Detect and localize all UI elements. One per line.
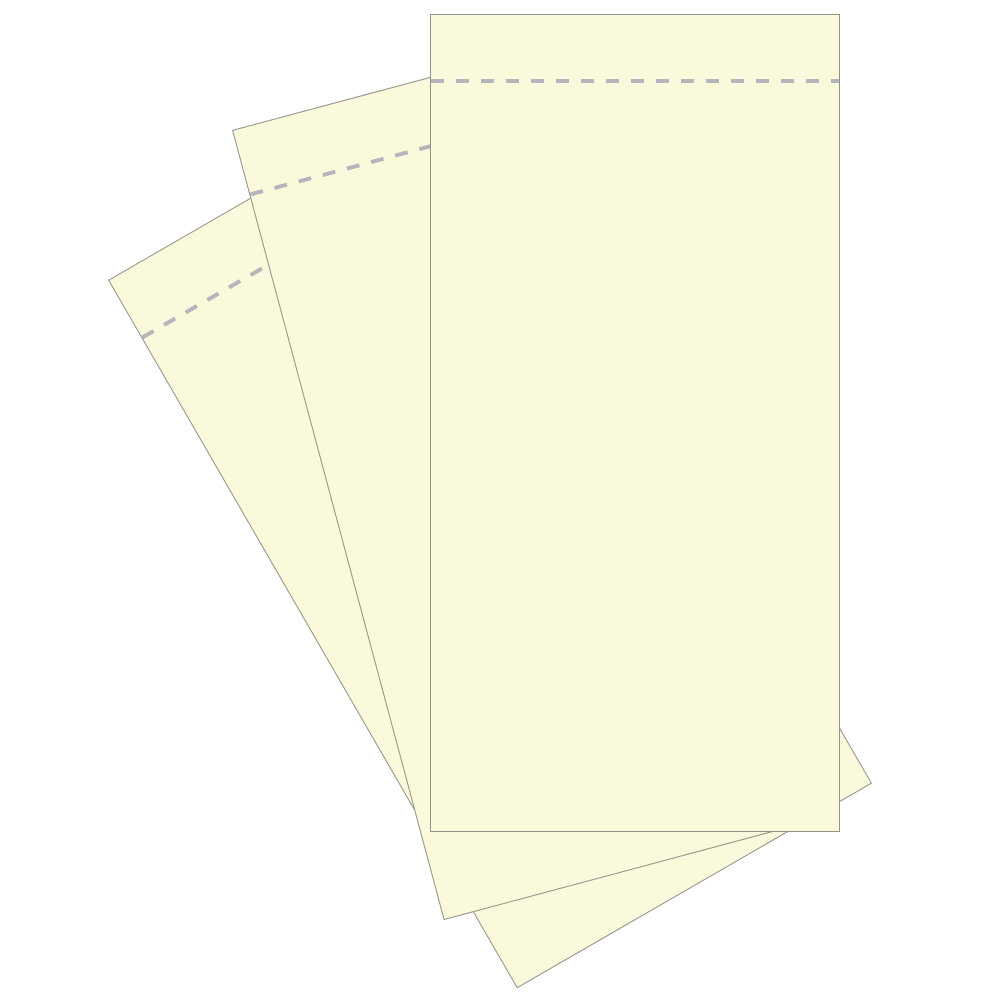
perforation-dashed-line — [431, 79, 839, 83]
sheet-front — [430, 14, 840, 832]
paper-stack-scene — [0, 0, 1000, 1000]
